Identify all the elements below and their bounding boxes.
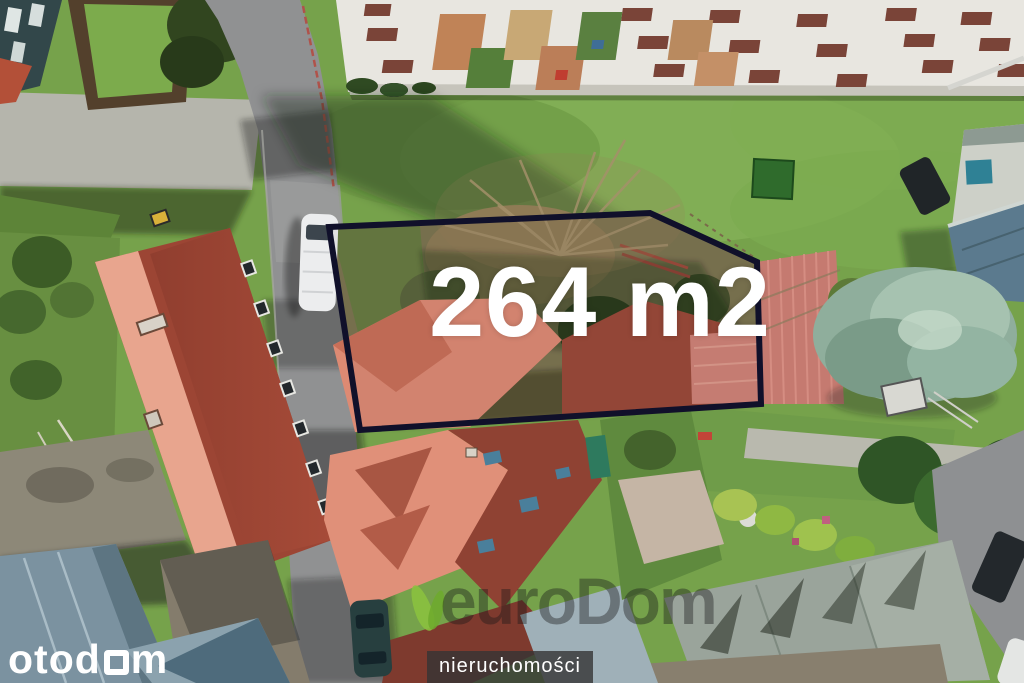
garden-toy: [698, 432, 712, 440]
apartment-blocks: [336, 0, 1024, 101]
aerial-photo: euroDom nieruchomości 264 m2 otod m: [0, 0, 1024, 683]
otodom-logo-prefix: otod: [8, 639, 101, 680]
otodom-logo: otod m: [8, 639, 168, 680]
otodom-logo-suffix: m: [131, 639, 168, 680]
square-o-icon: [104, 650, 129, 675]
dark-car: [349, 599, 392, 678]
agency-subtitle: nieruchomości: [427, 651, 593, 683]
top-left-block: [0, 0, 263, 240]
chimney: [466, 448, 477, 457]
teal-door: [965, 159, 992, 184]
plot-area-label: 264 m2: [420, 252, 780, 351]
agency-logo-text: euroDom: [440, 568, 716, 634]
